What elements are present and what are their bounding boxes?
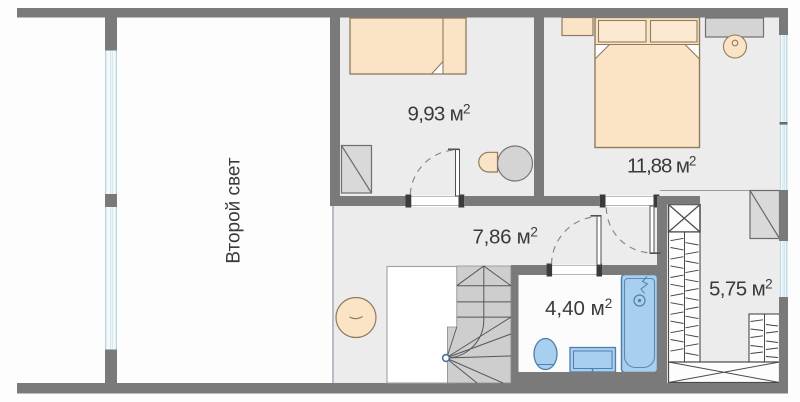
svg-text:5,75 м2: 5,75 м2 [709,277,772,301]
svg-text:9,93 м2: 9,93 м2 [408,102,471,126]
svg-text:4,40 м2: 4,40 м2 [545,296,612,320]
svg-text:11,88 м2: 11,88 м2 [627,154,696,178]
svg-text:Второй свет: Второй свет [224,157,245,263]
svg-text:7,86 м2: 7,86 м2 [473,225,538,249]
